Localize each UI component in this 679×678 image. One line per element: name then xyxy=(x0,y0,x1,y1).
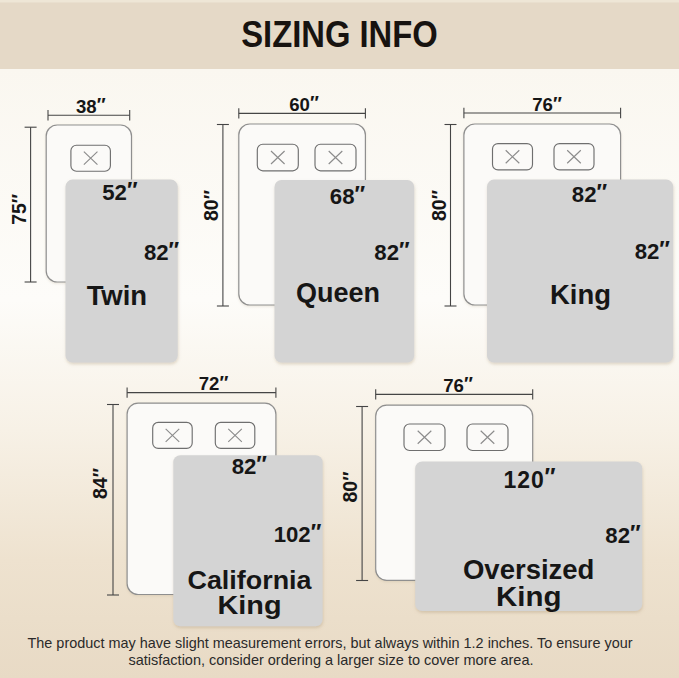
svg-text:King: King xyxy=(218,590,282,620)
svg-text:60″: 60″ xyxy=(289,92,319,115)
svg-text:King: King xyxy=(496,581,562,612)
svg-text:102″: 102″ xyxy=(274,519,322,547)
svg-text:80″: 80″ xyxy=(428,190,450,221)
svg-text:76″: 76″ xyxy=(443,373,473,396)
svg-text:82″: 82″ xyxy=(374,237,410,265)
svg-text:satisfaction, consider orderin: satisfaction, consider ordering a larger… xyxy=(129,652,534,668)
svg-text:82″: 82″ xyxy=(144,237,180,265)
svg-text:Twin: Twin xyxy=(87,279,148,311)
svg-text:The product may have slight me: The product may have slight measurement … xyxy=(28,635,633,651)
svg-text:80″: 80″ xyxy=(339,471,361,502)
svg-text:52″: 52″ xyxy=(102,177,138,205)
svg-text:80″: 80″ xyxy=(200,190,222,221)
svg-text:38″: 38″ xyxy=(76,94,106,117)
svg-text:82″: 82″ xyxy=(635,236,671,264)
svg-text:SIZING INFO: SIZING INFO xyxy=(241,14,438,55)
svg-text:84″: 84″ xyxy=(89,468,111,499)
svg-text:Queen: Queen xyxy=(296,276,380,308)
svg-text:72″: 72″ xyxy=(199,372,229,395)
svg-text:68″: 68″ xyxy=(330,181,366,209)
svg-text:82″: 82″ xyxy=(572,179,608,207)
svg-text:76″: 76″ xyxy=(532,93,562,116)
svg-text:82″: 82″ xyxy=(605,520,641,548)
svg-text:120″: 120″ xyxy=(504,464,557,493)
svg-text:75″: 75″ xyxy=(8,194,30,225)
svg-text:82″: 82″ xyxy=(232,451,268,479)
svg-text:King: King xyxy=(550,278,611,310)
